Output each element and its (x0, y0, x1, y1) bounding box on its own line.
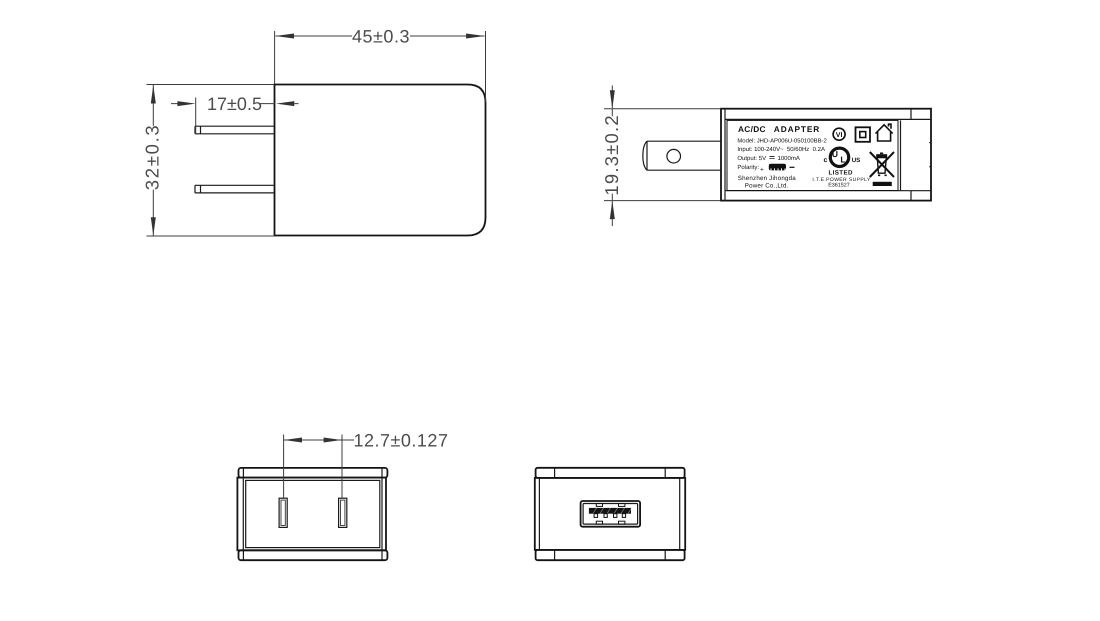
svg-text:Shenzhen Jihongda: Shenzhen Jihongda (738, 175, 796, 182)
svg-text:US: US (852, 157, 861, 164)
svg-text:19.3±0.2: 19.3±0.2 (601, 114, 622, 195)
svg-text:Polarity:: Polarity: (737, 164, 759, 171)
svg-text:E361527: E361527 (828, 182, 850, 188)
svg-text:12.7±0.127: 12.7±0.127 (354, 431, 449, 451)
svg-text:32±0.3: 32±0.3 (142, 124, 163, 191)
svg-text:1000mA: 1000mA (778, 155, 800, 162)
svg-text:Model: JHD-AP006U-050100BB-2: Model: JHD-AP006U-050100BB-2 (737, 137, 826, 144)
svg-text:AC/DC: AC/DC (738, 124, 766, 134)
svg-text:ADAPTER: ADAPTER (774, 124, 820, 134)
svg-text:Input: 100-240V~ 50/60Hz 0.2: Input: 100-240V~ 50/60Hz 0.2A (737, 146, 825, 153)
svg-text:17±0.5: 17±0.5 (207, 94, 262, 114)
svg-text:Output: 5V: Output: 5V (737, 155, 766, 162)
svg-text:U: U (832, 149, 838, 159)
svg-text:L: L (840, 155, 845, 165)
svg-text:Power Co.,Ltd.: Power Co.,Ltd. (745, 183, 789, 190)
svg-text:LISTED: LISTED (828, 170, 853, 177)
svg-text:45±0.3: 45±0.3 (352, 27, 410, 47)
svg-text:VI: VI (836, 132, 843, 139)
svg-text:+: + (760, 167, 764, 174)
svg-text:c: c (824, 157, 828, 164)
